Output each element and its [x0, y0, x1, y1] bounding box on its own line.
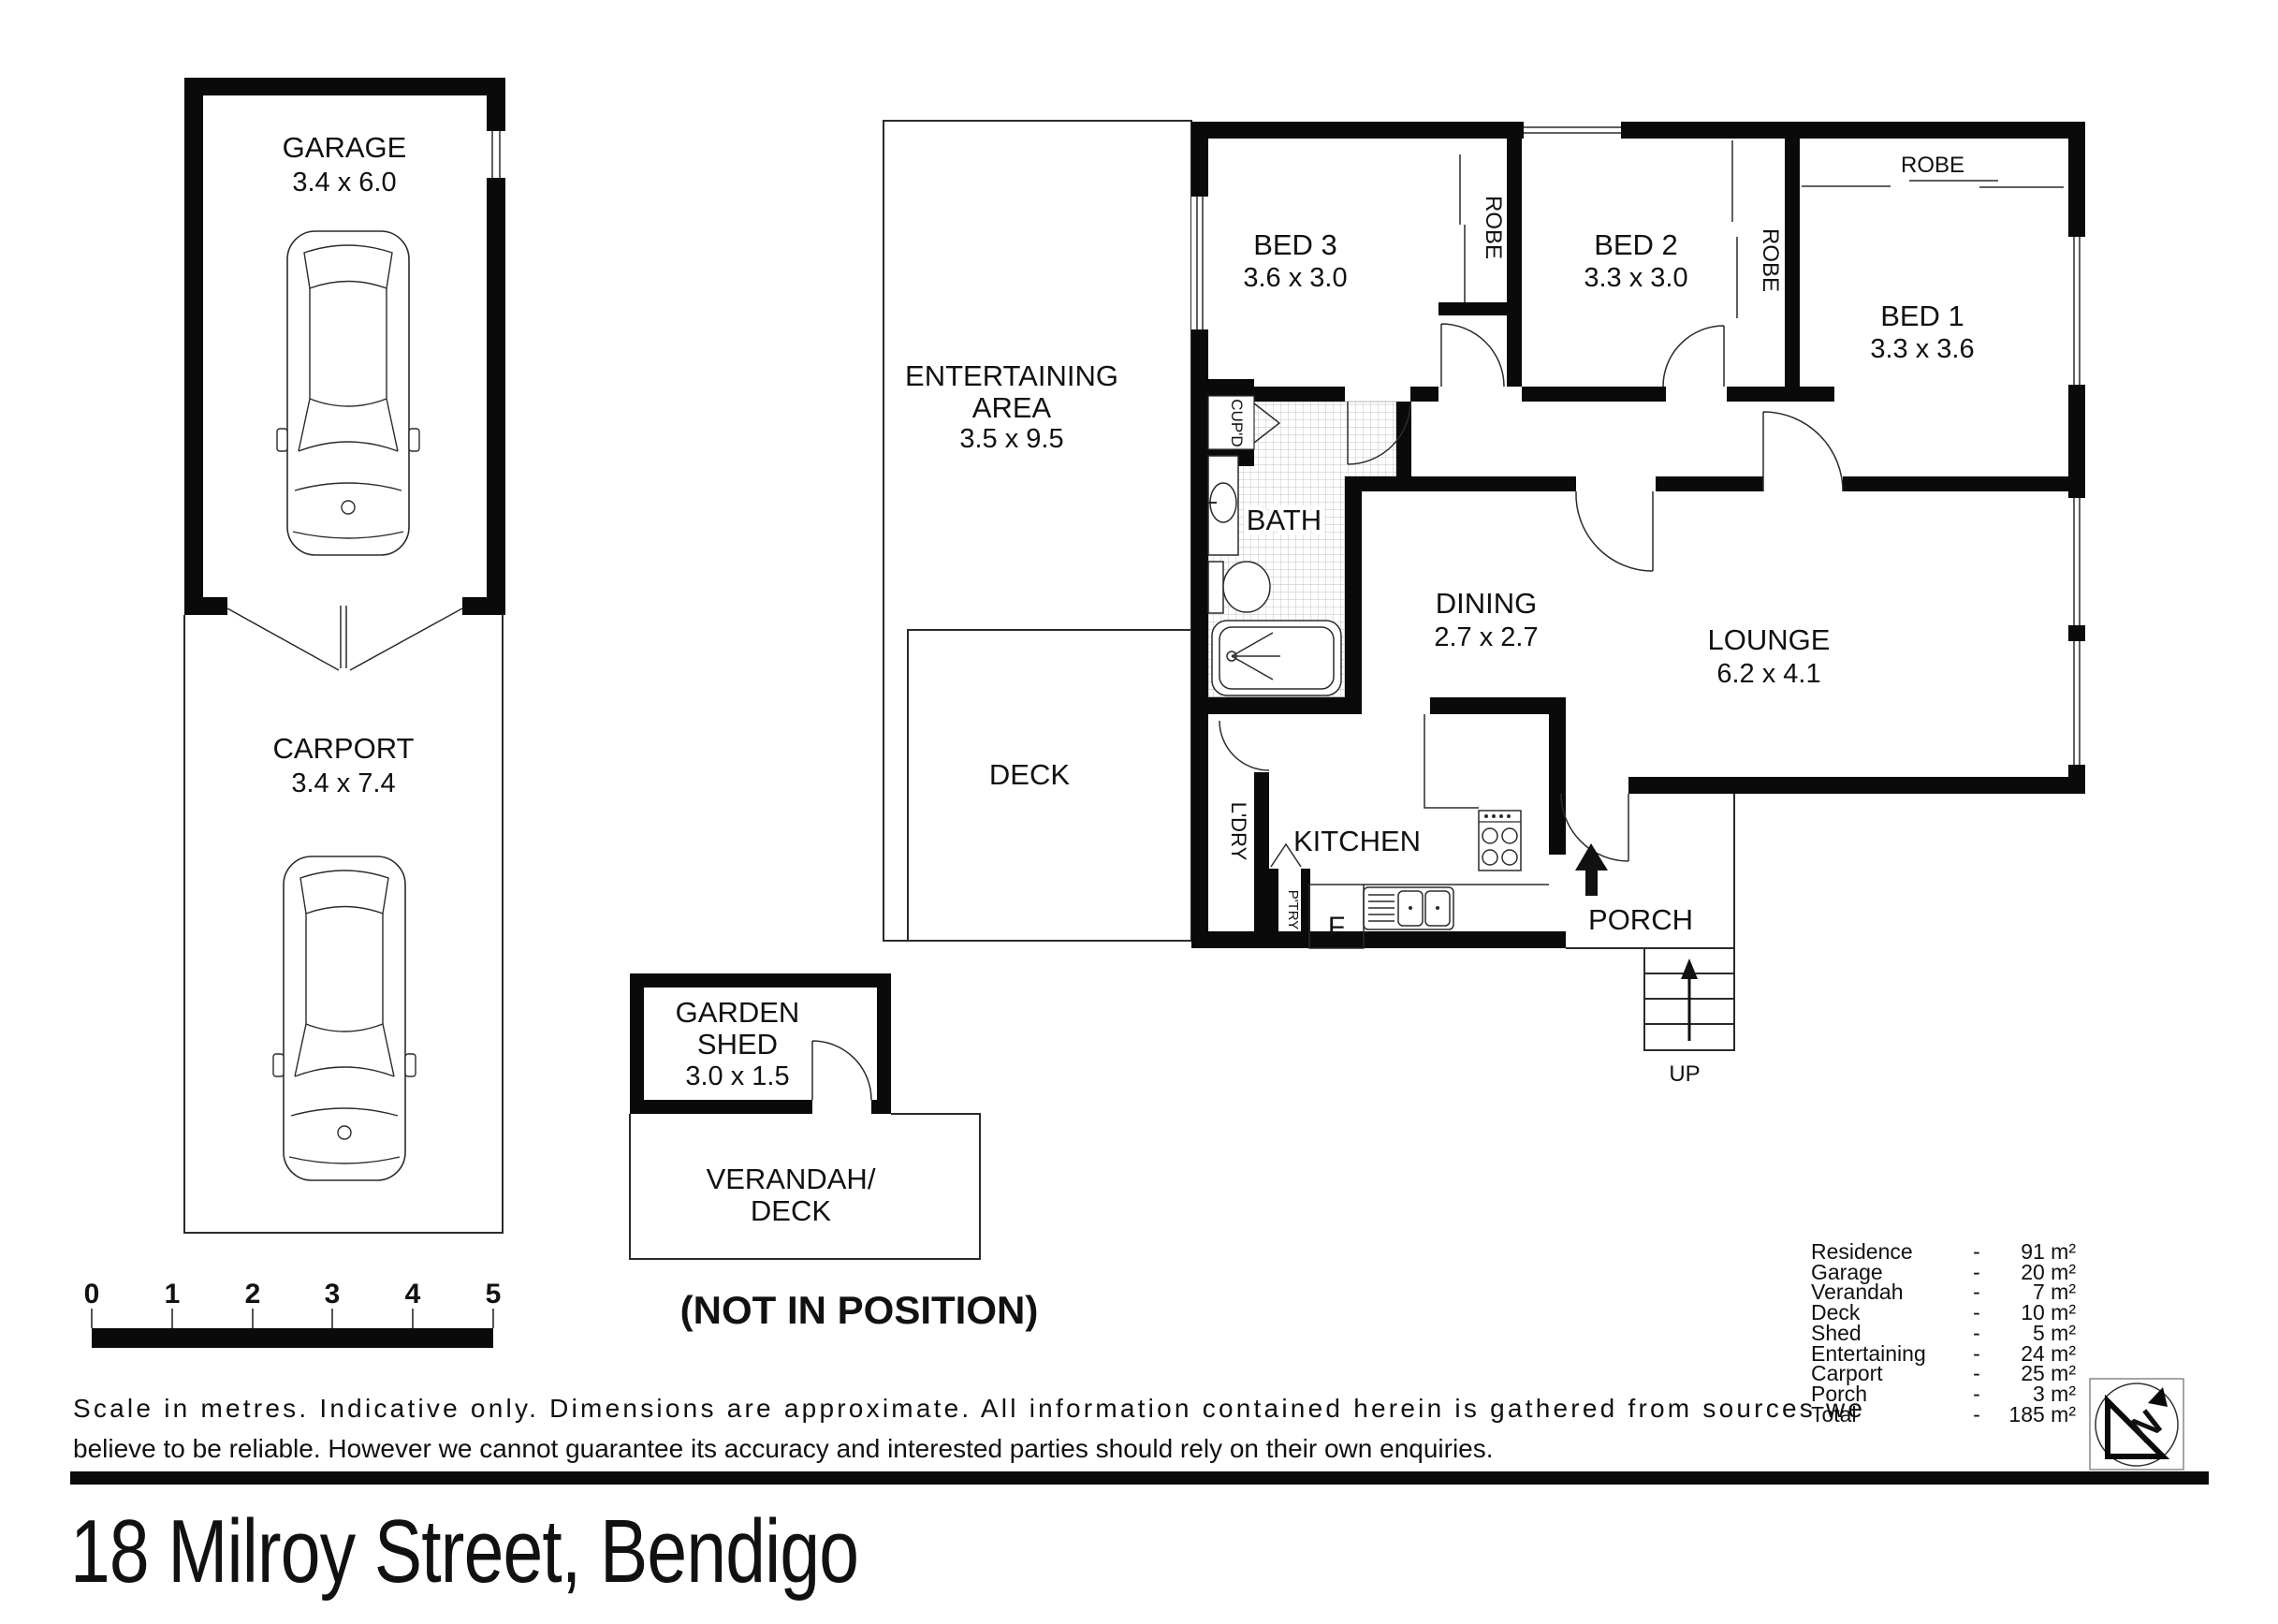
north-arrow-icon: N [2090, 1379, 2183, 1470]
entertaining-label-1: ENTERTAINING [905, 359, 1118, 392]
shed-label-1: GARDEN [676, 996, 800, 1029]
floorplan-canvas: GARAGE 3.4 x 6.0 CARPORT 3.4 x 7.4 ENTER… [0, 0, 2278, 1624]
wall-segment [1507, 139, 1522, 387]
cupboard-label: CUP'D [1228, 399, 1246, 446]
bath-label: BATH [1247, 504, 1322, 536]
stove-icon [1479, 811, 1521, 871]
disclaimer-line-2: believe to be reliable. However we canno… [73, 1434, 1494, 1463]
car-garage-icon [277, 231, 419, 555]
lounge-window-lower [2068, 641, 2085, 765]
scale-tick-0: 0 [84, 1279, 100, 1309]
wall-segment [871, 1100, 891, 1114]
garage-dims: 3.4 x 6.0 [292, 168, 396, 198]
toilet-bowl-icon [1223, 562, 1270, 612]
lounge-dims: 6.2 x 4.1 [1716, 659, 1820, 689]
wall-segment [184, 78, 505, 95]
wall-segment [184, 78, 203, 615]
wall-segment [1628, 777, 2085, 794]
stairs-up-label: UP [1669, 1061, 1700, 1087]
carport-label: CARPORT [272, 732, 414, 765]
scale-tick-5: 5 [486, 1279, 502, 1309]
toilet-cistern-icon [1208, 562, 1223, 613]
verandah-label-1: VERANDAH/ [707, 1163, 876, 1195]
wall-segment [1191, 379, 1254, 396]
garage-label: GARAGE [283, 131, 407, 164]
footer-rule [70, 1471, 2209, 1485]
garage-window [487, 131, 505, 178]
laundry-label: L'DRY [1227, 802, 1250, 861]
bed2-dims: 3.3 x 3.0 [1584, 263, 1687, 293]
wall-segment [1430, 697, 1566, 714]
wall-segment [462, 597, 505, 615]
not-in-position-note: (NOT IN POSITION) [680, 1288, 1039, 1332]
wall-segment [630, 973, 644, 1114]
area-sep: - [1973, 1402, 1980, 1426]
robe-bed2-label: ROBE [1758, 228, 1783, 292]
bed2-top-window [1524, 122, 1621, 139]
area-label: Total [1811, 1402, 1857, 1426]
wall-segment [877, 973, 891, 1114]
verandah-label-2: DECK [751, 1194, 831, 1227]
wall-segment [1410, 387, 1438, 402]
wall-segment [1656, 476, 1763, 491]
wall-segment [630, 1100, 812, 1114]
kitchen-sink-icon [1364, 887, 1453, 929]
wall-segment [1549, 697, 1566, 855]
wall-segment [1208, 697, 1345, 714]
wall-segment [1522, 387, 1666, 402]
shed-label-2: SHED [697, 1028, 778, 1061]
shed-dims: 3.0 x 1.5 [685, 1061, 789, 1091]
robe-bed1-label: ROBE [1901, 153, 1964, 178]
wall-segment [1549, 931, 1566, 948]
carport-dims: 3.4 x 7.4 [291, 768, 395, 798]
dining-label: DINING [1436, 587, 1538, 620]
fridge-label: F [1328, 912, 1345, 943]
bed1-dims: 3.3 x 3.6 [1870, 334, 1974, 364]
wall-segment [1269, 869, 1278, 948]
area-value: 185 m² [2008, 1402, 2076, 1426]
wall-segment [487, 178, 505, 615]
wall-segment [1191, 122, 2085, 139]
deck-label: DECK [989, 758, 1070, 791]
wall-segment [1843, 476, 2068, 491]
dining-dims: 2.7 x 2.7 [1434, 622, 1538, 652]
wall-segment [1438, 302, 1507, 315]
kitchen-label: KITCHEN [1293, 825, 1421, 857]
scale-bar-rule [92, 1328, 493, 1348]
wall-segment [1345, 476, 1576, 491]
page-title: 18 Milroy Street, Bendigo [70, 1501, 858, 1602]
bed2-label: BED 2 [1594, 228, 1678, 261]
wall-segment [1727, 387, 1834, 402]
wall-segment [1254, 772, 1269, 948]
porch-label: PORCH [1588, 903, 1693, 936]
entertaining-label-2: AREA [972, 391, 1052, 424]
robe-bed3-label: ROBE [1481, 196, 1506, 259]
disclaimer-line-1: Scale in metres. Indicative only. Dimens… [73, 1394, 1862, 1423]
bed1-label: BED 1 [1880, 300, 1964, 332]
bed1-right-window [2068, 237, 2085, 385]
lounge-window-upper [2068, 498, 2085, 625]
floorplan-page: GARAGE 3.4 x 6.0 CARPORT 3.4 x 7.4 ENTER… [0, 0, 2278, 1624]
wall-segment [1345, 491, 1362, 714]
bed3-left-window [1191, 197, 1208, 329]
scale-tick-4: 4 [405, 1279, 421, 1309]
wall-segment [184, 597, 227, 615]
entertaining-dims: 3.5 x 9.5 [959, 424, 1063, 454]
scale-tick-3: 3 [325, 1279, 341, 1309]
scale-tick-1: 1 [165, 1279, 181, 1309]
scale-tick-2: 2 [245, 1279, 261, 1309]
bed3-dims: 3.6 x 3.0 [1243, 263, 1347, 293]
lounge-label: LOUNGE [1708, 623, 1831, 656]
wall-segment [487, 95, 505, 131]
car-carport-icon [273, 856, 416, 1180]
bed3-label: BED 3 [1253, 228, 1337, 261]
wall-segment [630, 973, 891, 988]
wall-segment [1191, 931, 1566, 948]
pantry-label: P'TRY [1285, 890, 1301, 930]
wall-segment [1785, 139, 1800, 387]
